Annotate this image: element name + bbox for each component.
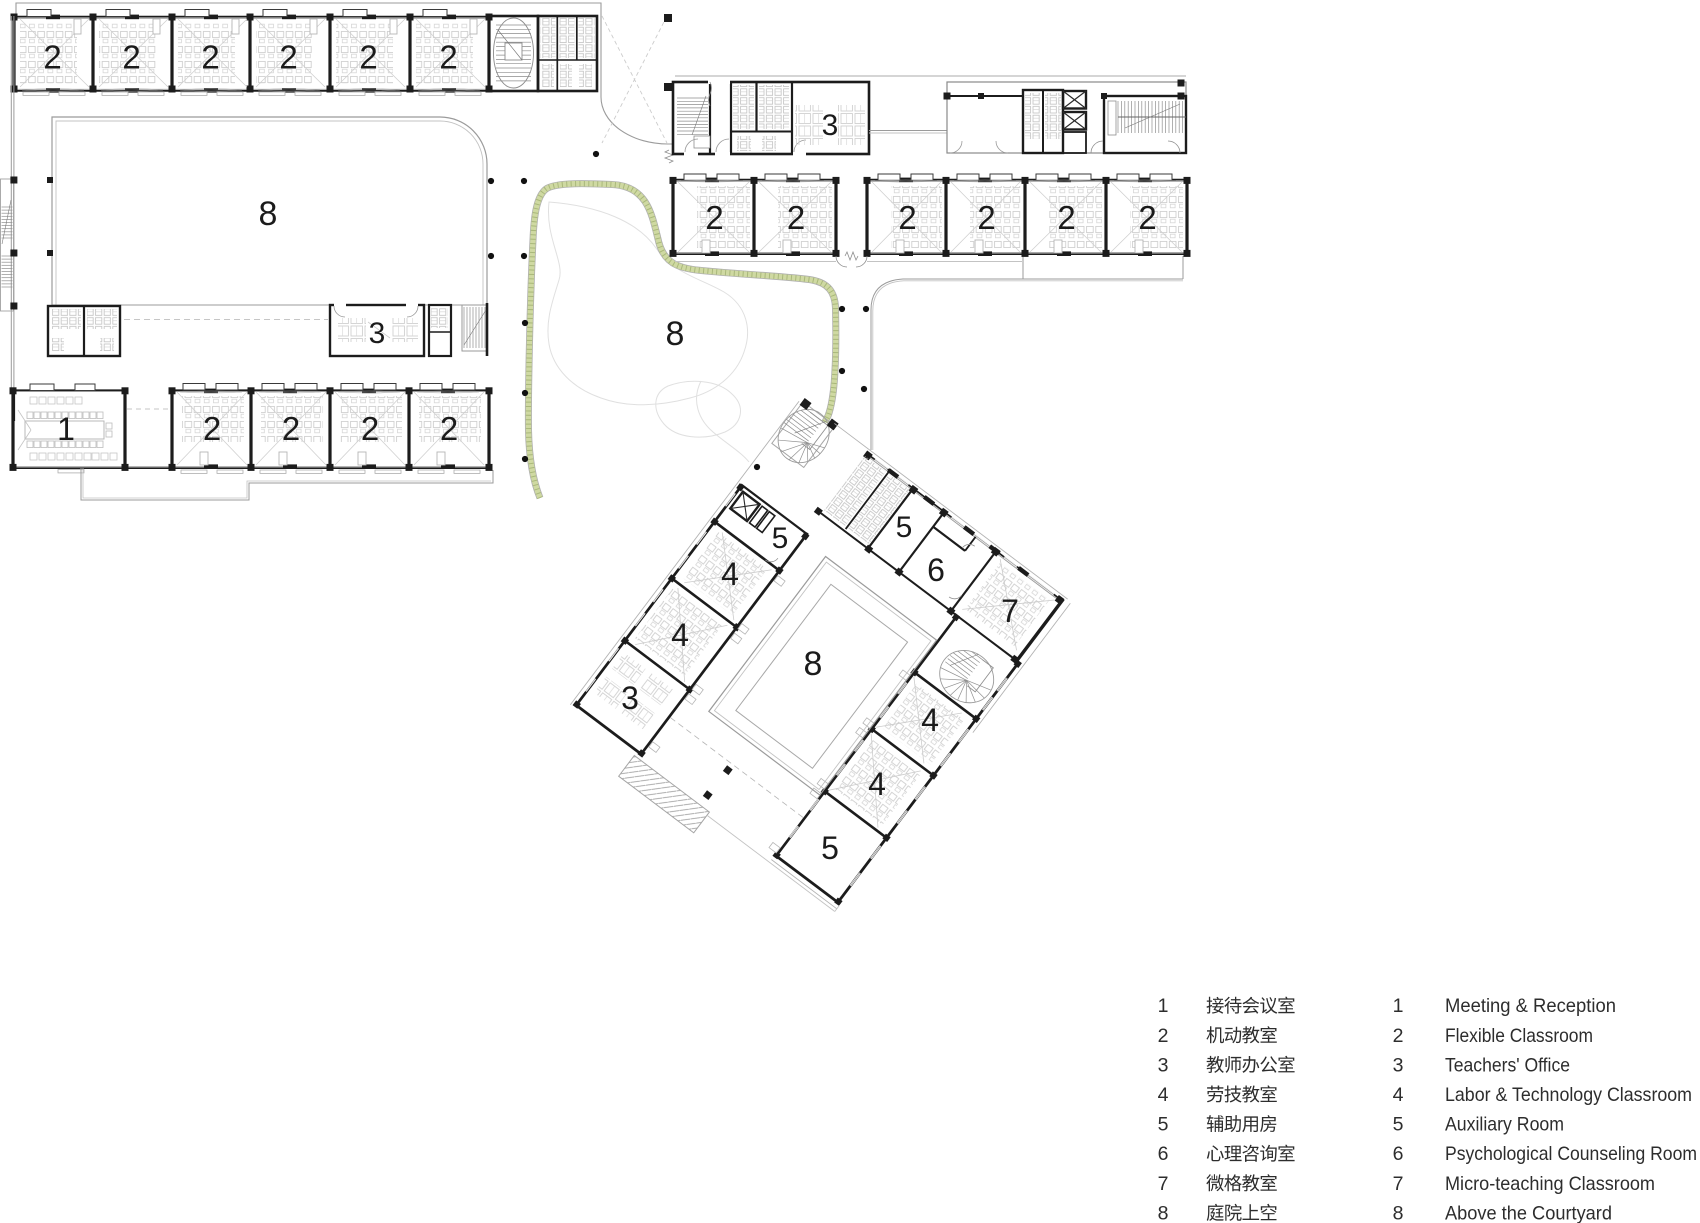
svg-text:5: 5 [1158,1114,1169,1136]
svg-text:6: 6 [1393,1143,1404,1165]
svg-text:2: 2 [787,199,805,236]
svg-text:2: 2 [203,410,221,447]
svg-text:4: 4 [868,766,886,802]
svg-text:2: 2 [43,39,61,76]
svg-text:4: 4 [1158,1084,1169,1106]
svg-text:8: 8 [804,645,823,683]
svg-text:Teachers' Office: Teachers' Office [1445,1054,1570,1076]
svg-text:Flexible Classroom: Flexible Classroom [1445,1025,1593,1047]
svg-text:Psychological Counseling Room: Psychological Counseling Room [1445,1143,1697,1165]
svg-text:2: 2 [1158,1025,1169,1047]
svg-text:2: 2 [705,199,723,236]
svg-text:2: 2 [122,39,140,76]
svg-text:7: 7 [1001,593,1019,629]
svg-text:6: 6 [927,552,945,588]
svg-text:2: 2 [361,410,379,447]
svg-text:8: 8 [259,195,278,233]
svg-text:2: 2 [440,410,458,447]
svg-text:8: 8 [1158,1202,1169,1223]
svg-text:3: 3 [621,680,639,716]
svg-text:4: 4 [1393,1084,1404,1106]
svg-text:7: 7 [1158,1173,1169,1195]
svg-text:1: 1 [1158,995,1169,1017]
svg-text:1: 1 [1393,995,1404,1017]
svg-text:2: 2 [898,199,916,236]
svg-text:Labor & Technology Classroom: Labor & Technology Classroom [1445,1084,1692,1106]
svg-text:2: 2 [279,39,297,76]
svg-text:5: 5 [1393,1114,1404,1136]
svg-text:2: 2 [977,199,995,236]
svg-text:Micro-teaching Classroom: Micro-teaching Classroom [1445,1173,1655,1195]
svg-text:3: 3 [1158,1054,1169,1076]
svg-text:1: 1 [57,411,75,447]
svg-text:4: 4 [721,556,739,592]
svg-text:8: 8 [666,315,685,353]
svg-text:2: 2 [201,39,219,76]
svg-text:4: 4 [921,702,939,738]
svg-text:2: 2 [359,39,377,76]
svg-text:3: 3 [822,109,839,142]
svg-text:Above the Courtyard: Above the Courtyard [1445,1202,1612,1223]
svg-text:3: 3 [369,317,386,350]
svg-text:2: 2 [1138,199,1156,236]
svg-text:5: 5 [821,830,839,866]
svg-text:2: 2 [1057,199,1075,236]
svg-text:3: 3 [1393,1054,1404,1076]
svg-text:8: 8 [1393,1202,1404,1223]
svg-text:2: 2 [282,410,300,447]
svg-text:5: 5 [772,522,789,555]
svg-text:5: 5 [896,511,913,544]
svg-text:2: 2 [1393,1025,1404,1047]
svg-text:4: 4 [671,617,689,653]
svg-text:Auxiliary Room: Auxiliary Room [1445,1114,1564,1136]
svg-text:2: 2 [439,39,457,76]
svg-text:Meeting & Reception: Meeting & Reception [1445,995,1616,1017]
svg-text:6: 6 [1158,1143,1169,1165]
svg-text:7: 7 [1393,1173,1404,1195]
